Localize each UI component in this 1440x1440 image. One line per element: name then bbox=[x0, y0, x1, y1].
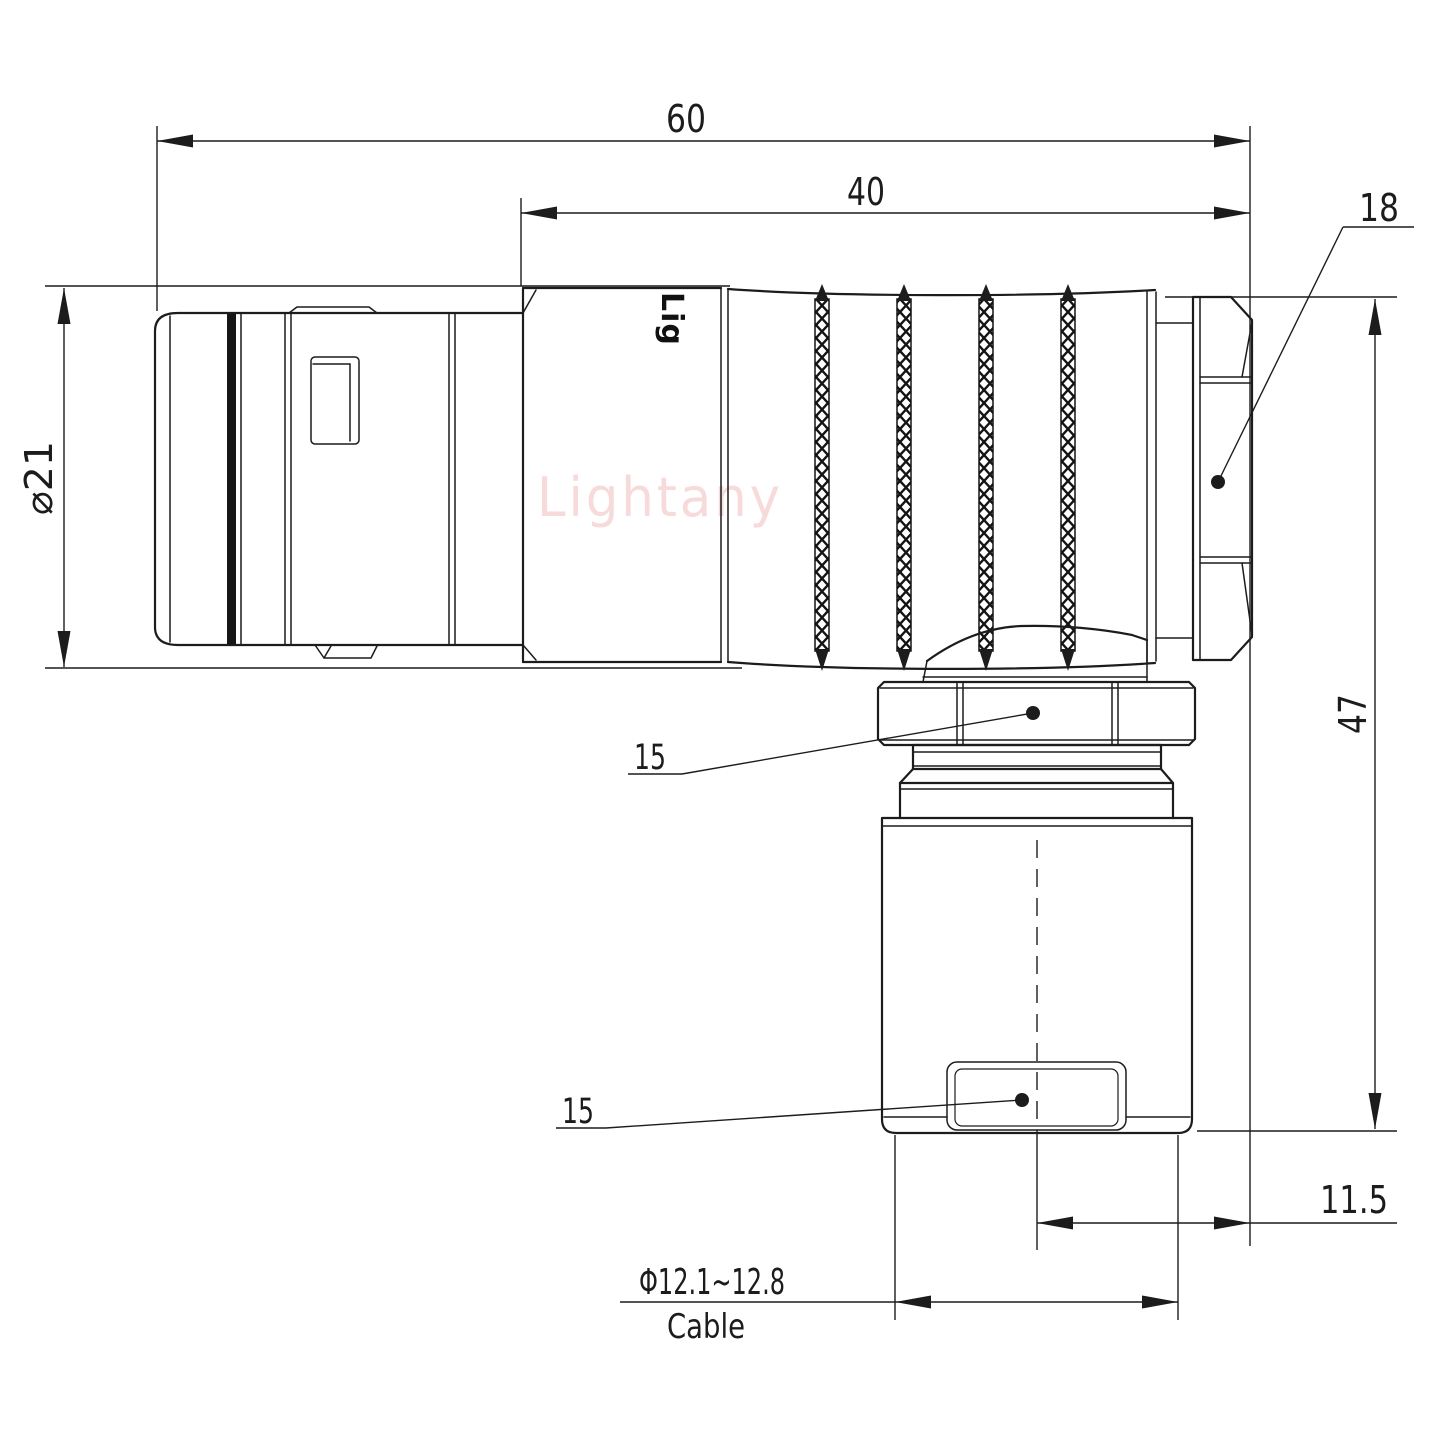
leader-cable-clamp: 15 bbox=[556, 1092, 1029, 1132]
dimension-body-length: 40 bbox=[521, 170, 1250, 286]
leader-coupling-nut: 15 bbox=[628, 706, 1040, 778]
shell-groove-band bbox=[227, 314, 236, 644]
dim-exit-offset-text: 11.5 bbox=[1320, 1178, 1388, 1222]
drawing-page: Lightany bbox=[0, 0, 1440, 1440]
dim-cable-word-text: Cable bbox=[667, 1307, 745, 1347]
dim-backnut-text: 18 bbox=[1359, 186, 1399, 230]
dim-shell-diameter-text: ⌀21 bbox=[17, 441, 61, 515]
dim-overall-length-text: 60 bbox=[666, 97, 706, 141]
dimension-cable-range: Φ12.1~12.8 Cable bbox=[620, 1135, 1178, 1347]
technical-drawing: Lightany bbox=[0, 0, 1440, 1440]
latch-window bbox=[311, 357, 359, 444]
gland-stack bbox=[900, 745, 1173, 818]
knurl-section bbox=[728, 284, 1156, 671]
dimension-exit-offset: 11.5 bbox=[1037, 1135, 1397, 1320]
leader-backnut: 18 bbox=[1211, 186, 1414, 489]
elbow bbox=[923, 626, 1147, 682]
dim-overall-height-text: 47 bbox=[1331, 694, 1375, 734]
dim-coupling-nut-text: 15 bbox=[634, 738, 666, 778]
lower-body bbox=[882, 818, 1192, 1250]
shell-print-text: Lig bbox=[654, 292, 689, 346]
neck bbox=[1156, 323, 1193, 638]
knurl-strips bbox=[815, 284, 1075, 671]
connector-views: Lig bbox=[155, 284, 1252, 1250]
dim-body-length-text: 40 bbox=[847, 170, 885, 214]
front-shell bbox=[155, 307, 523, 658]
dim-cable-clamp-text: 15 bbox=[562, 1092, 594, 1132]
dimension-overall-length: 60 bbox=[157, 97, 1250, 1246]
watermark-text: Lightany bbox=[537, 466, 783, 529]
dim-cable-range-text: Φ12.1~12.8 bbox=[639, 1262, 785, 1303]
